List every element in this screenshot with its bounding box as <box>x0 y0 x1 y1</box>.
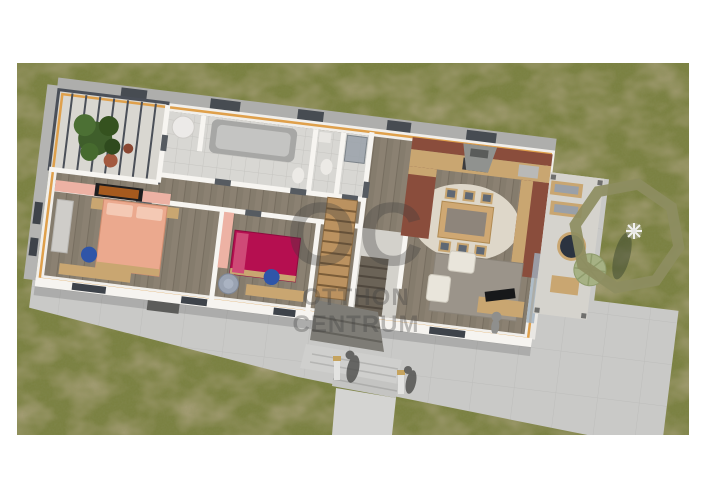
bollard-light-2 <box>398 372 404 394</box>
screenshot-canvas: OC OTTHON CENTRUM <box>0 0 707 500</box>
sink <box>518 164 539 178</box>
bollard-light <box>334 358 340 380</box>
watermark: OC OTTHON CENTRUM <box>287 185 426 338</box>
bollard-cap <box>333 356 341 361</box>
watermark-line1: OTTHON <box>302 284 409 311</box>
parasol-top <box>632 229 637 234</box>
bollard-cap-2 <box>397 370 405 375</box>
armchair <box>448 251 476 274</box>
floorplan-render: OC OTTHON CENTRUM <box>0 0 707 500</box>
watermark-line2: CENTRUM <box>293 311 420 338</box>
table-runner <box>444 208 487 237</box>
nightstand-2 <box>166 207 179 219</box>
armchair-2 <box>426 274 451 302</box>
deck-bench <box>550 275 580 295</box>
shower <box>344 135 367 163</box>
nightstand <box>91 198 104 210</box>
washbasin <box>318 132 331 143</box>
watermark-logo: OC <box>287 185 426 285</box>
dining-set <box>436 187 495 257</box>
